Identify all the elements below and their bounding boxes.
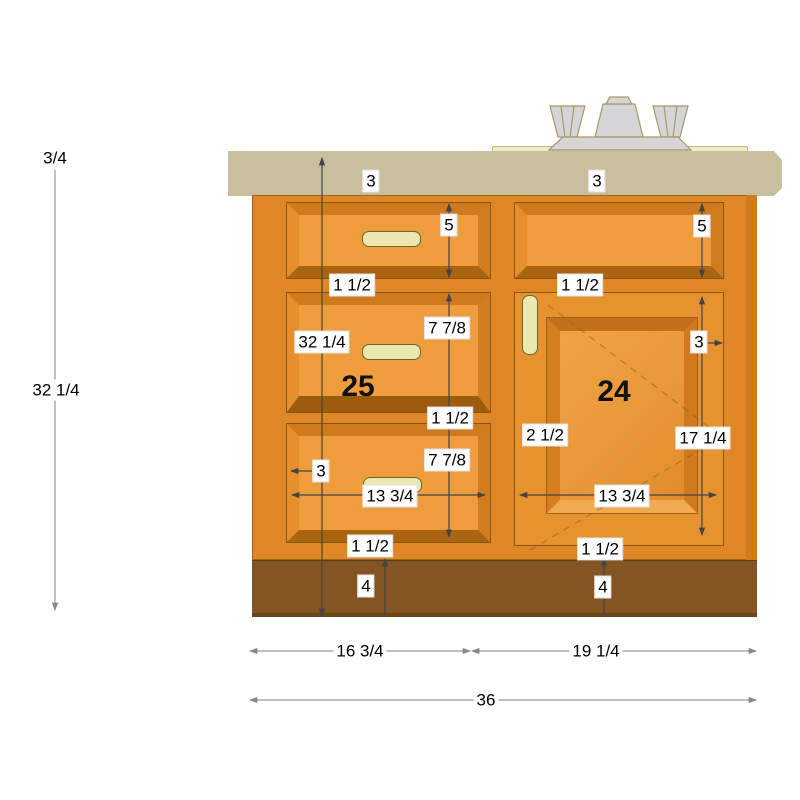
dim-door-stile-left: 2 1/2 — [522, 424, 568, 447]
dim-sink-section-width: 19 1/4 — [569, 641, 622, 662]
dim-sink-front-height: 5 — [693, 215, 710, 238]
dim-top-rail-left: 1 1/2 — [329, 274, 375, 297]
dim-face-height: 32 1/4 — [294, 331, 349, 354]
unit-number-right: 24 — [597, 375, 630, 409]
dim-total-width: 36 — [474, 690, 499, 711]
unit-number-left: 25 — [341, 370, 374, 404]
dim-door-stile-right: 3 — [690, 331, 707, 354]
dim-bottom-rail-left: 1 1/2 — [347, 535, 393, 558]
door-handle-icon — [522, 295, 538, 355]
dim-drawer-handle-span: 13 3/4 — [362, 485, 417, 508]
dim-top-rail-right: 1 1/2 — [557, 274, 603, 297]
dim-mid-rail: 1 1/2 — [427, 407, 473, 430]
dim-toe-kick-height-right: 4 — [594, 576, 611, 599]
sink-false-front — [515, 203, 723, 278]
countertop — [228, 151, 782, 196]
drawer-handle-icon — [362, 344, 421, 360]
cabinet-elevation-diagram: 3/4 32 1/4 3 3 5 5 1 1/2 1 1/2 7 7/8 32 … — [0, 0, 800, 800]
dim-door-panel-height: 17 1/4 — [675, 427, 730, 450]
dim-countertop-thickness-right: 3 — [588, 170, 605, 193]
cabinet-side-edge — [746, 195, 757, 560]
toe-kick — [252, 560, 757, 617]
drawer-handle-icon — [362, 231, 421, 247]
dim-countertop-thickness-left: 3 — [362, 170, 379, 193]
dim-bottom-drawer-front: 7 7/8 — [424, 449, 470, 472]
dim-door-panel-width: 13 3/4 — [594, 485, 649, 508]
dim-drawer-bank-width: 16 3/4 — [333, 641, 386, 662]
dim-bottom-rail-right: 1 1/2 — [577, 538, 623, 561]
dim-countertop-overhang: 3/4 — [40, 148, 70, 169]
dim-middle-drawer-front: 7 7/8 — [424, 317, 470, 340]
dim-drawer-side-margin: 3 — [312, 460, 329, 483]
dim-top-drawer-height: 5 — [440, 214, 457, 237]
dim-toe-kick-height-left: 4 — [357, 575, 374, 598]
dim-cabinet-height: 32 1/4 — [29, 380, 82, 401]
